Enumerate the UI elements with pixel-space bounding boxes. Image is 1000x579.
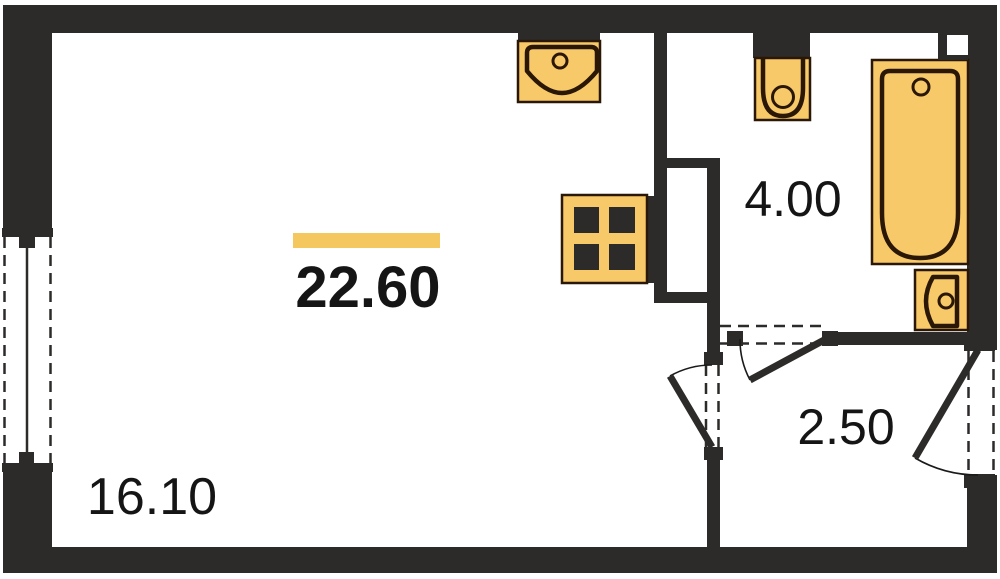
stove-burner: [609, 207, 635, 233]
living-room-door-frame-bottom: [704, 447, 723, 460]
hallway-area-label: 2.50: [766, 402, 926, 452]
bathroom-door-leaf: [750, 339, 826, 380]
kitchen-sink: [518, 29, 600, 102]
entrance-door: [915, 339, 995, 488]
living-room-door-frame-top: [704, 352, 723, 365]
window-sill-bottom: [2, 463, 53, 472]
bathroom-door: [720, 326, 968, 380]
corner-vent-notch: [947, 35, 968, 55]
living-room-area-label: 16.10: [72, 471, 232, 523]
window-mullion-cap-top: [19, 237, 35, 248]
toilet: [753, 32, 810, 120]
bathroom-area-label: 4.00: [713, 174, 873, 224]
entrance-door-frame-bottom: [964, 474, 995, 488]
window: [2, 228, 53, 472]
living-room-door: [670, 352, 723, 460]
washbasin: [915, 270, 968, 330]
bathtub: [872, 60, 968, 264]
stove-burner: [609, 244, 635, 270]
stove: [562, 195, 659, 283]
stove-burner: [574, 207, 599, 233]
floor-plan: 22.60 16.10 4.00 2.50: [0, 0, 1000, 579]
total-area-label: 22.60: [268, 259, 468, 317]
stove-burner: [574, 244, 599, 270]
window-sill-top: [2, 228, 53, 237]
entrance-door-frame-top: [964, 339, 995, 351]
toilet-tank: [753, 32, 810, 58]
hallway-top-wall: [836, 332, 968, 345]
total-area-underline: [293, 233, 440, 248]
corner-vent: [938, 33, 968, 60]
